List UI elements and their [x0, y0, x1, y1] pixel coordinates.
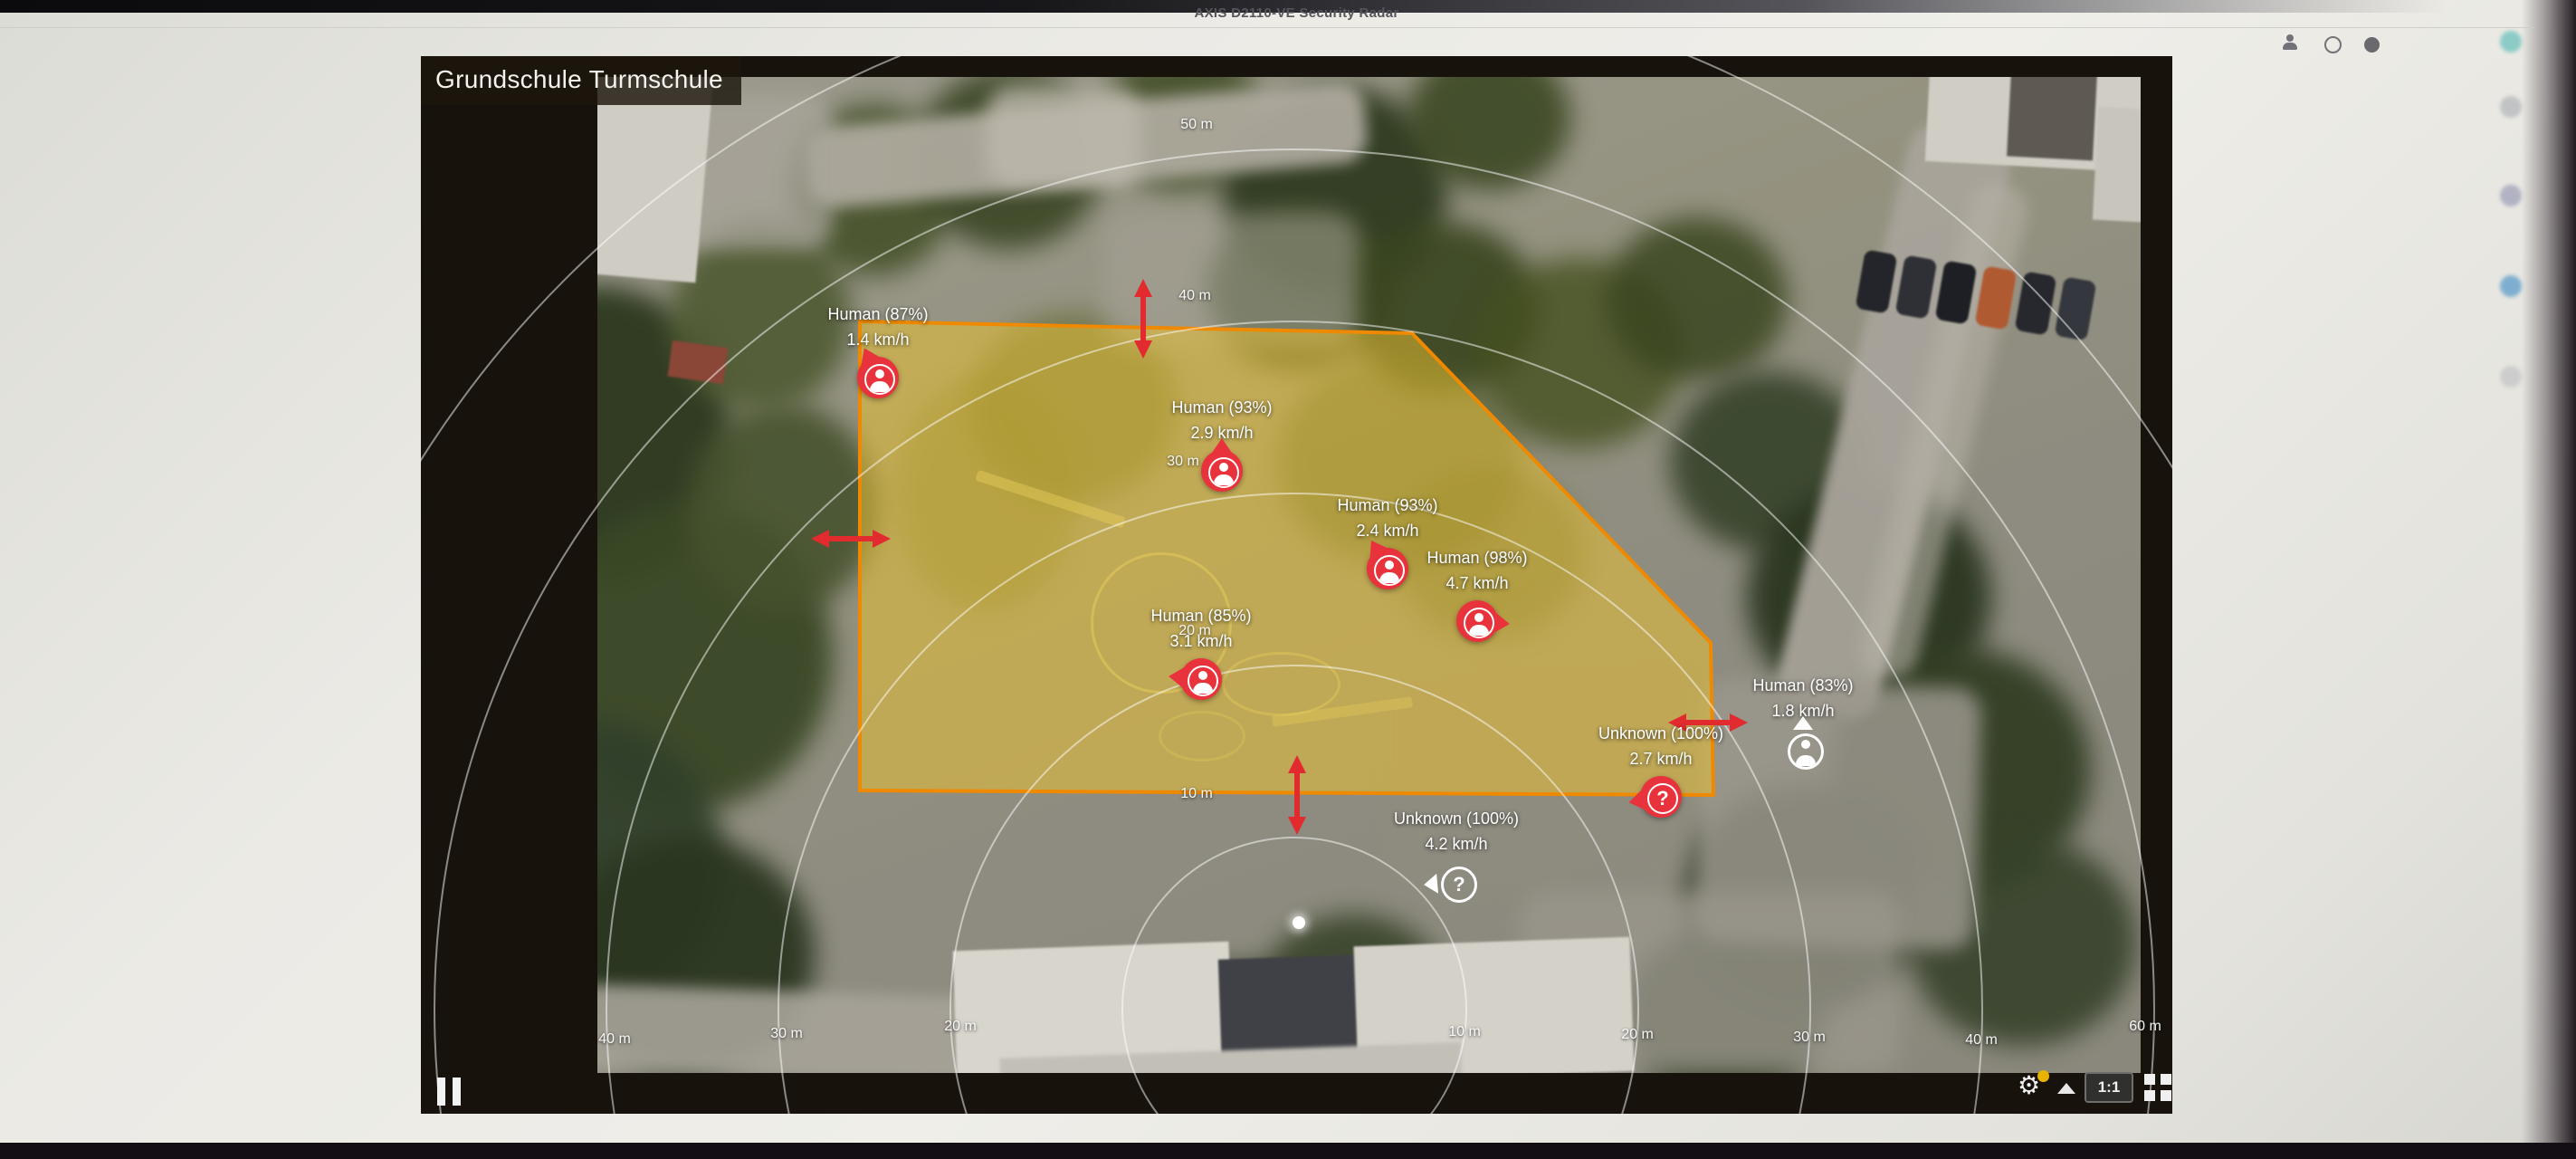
detection-speed-text: 2.7 km/h: [1598, 747, 1723, 772]
detection-human-alarm[interactable]: Human (93%)2.9 km/h: [1201, 450, 1243, 492]
detection-unknown[interactable]: Unknown (100%)4.2 km/h?: [1436, 861, 1477, 903]
person-marker-icon: [1782, 728, 1824, 770]
app-header: AXIS D2110-VE Security Radar: [421, 0, 2172, 27]
person-marker-icon: [1180, 658, 1222, 700]
detection-label: Human (93%)2.4 km/h: [1337, 493, 1437, 544]
detection-class-text: Human (85%): [1150, 604, 1251, 629]
menu-icon[interactable]: [2364, 34, 2382, 53]
user-icon[interactable]: [2281, 34, 2299, 53]
detection-label: Human (85%)3.1 km/h: [1150, 604, 1251, 655]
person-marker-icon: [857, 357, 899, 398]
person-marker-icon: [1201, 450, 1243, 492]
detection-human-alarm[interactable]: Human (93%)2.4 km/h: [1367, 548, 1408, 589]
unknown-marker-icon: ?: [1640, 776, 1682, 818]
unknown-marker-icon: ?: [1436, 861, 1477, 903]
detection-speed-text: 2.4 km/h: [1337, 519, 1437, 544]
detection-class-text: Human (83%): [1752, 674, 1853, 699]
chevron-up-icon[interactable]: [2057, 1083, 2075, 1094]
detection-human[interactable]: Human (83%)1.8 km/h: [1782, 728, 1824, 770]
detection-speed-text: 4.7 km/h: [1426, 571, 1527, 597]
detection-class-text: Human (98%): [1426, 546, 1527, 571]
sidebar-icon[interactable]: [2500, 96, 2522, 118]
detection-class-text: Unknown (100%): [1598, 722, 1723, 747]
radar-live-view: 50 m40 m30 m20 m10 m10 m20 m30 m40 m60 m…: [421, 56, 2172, 1114]
detections-layer: Human (87%)1.4 km/hHuman (93%)2.9 km/hHu…: [421, 56, 2172, 1114]
sidebar-icon[interactable]: [2500, 31, 2522, 53]
scene-name-label: Grundschule Turmschule: [421, 56, 741, 105]
detection-unknown-alarm[interactable]: Unknown (100%)2.7 km/h?: [1640, 776, 1682, 818]
settings-notification-badge: [2037, 1070, 2049, 1082]
zoom-1-1-button[interactable]: 1:1: [2085, 1072, 2133, 1103]
sidebar-icon[interactable]: [2500, 366, 2522, 388]
detection-human-alarm[interactable]: Human (85%)3.1 km/h: [1180, 658, 1222, 700]
detection-speed-text: 4.2 km/h: [1394, 832, 1519, 857]
detection-label: Unknown (100%)2.7 km/h: [1598, 722, 1723, 772]
detection-class-text: Human (87%): [827, 302, 928, 328]
header-divider: [0, 27, 2534, 28]
browser-sidebar-icons: [2500, 0, 2527, 453]
person-marker-icon: [1367, 548, 1408, 589]
detection-human-alarm[interactable]: Human (87%)1.4 km/h: [857, 357, 899, 398]
monitor-bezel-right: [2522, 0, 2576, 1159]
viewer-controls: ⚙ 1:1: [2012, 1068, 2171, 1110]
detection-class-text: Human (93%): [1337, 493, 1437, 519]
detection-label: Unknown (100%)4.2 km/h: [1394, 807, 1519, 857]
page-title: AXIS D2110-VE Security Radar: [1194, 5, 1398, 21]
pause-icon: [437, 1078, 445, 1106]
header-toolbar: [2263, 31, 2426, 58]
sidebar-icon[interactable]: [2500, 275, 2522, 297]
person-marker-icon: [1456, 600, 1498, 642]
detection-label: Human (87%)1.4 km/h: [827, 302, 928, 353]
fullscreen-icon[interactable]: [2144, 1074, 2171, 1101]
sidebar-icon[interactable]: [2500, 185, 2522, 206]
detection-human-alarm[interactable]: Human (98%)4.7 km/h: [1456, 600, 1498, 642]
detection-class-text: Human (93%): [1171, 396, 1272, 421]
detection-speed-text: 3.1 km/h: [1150, 629, 1251, 655]
help-icon[interactable]: [2324, 34, 2342, 53]
detection-label: Human (98%)4.7 km/h: [1426, 546, 1527, 597]
pause-button[interactable]: [434, 1076, 466, 1108]
detection-class-text: Unknown (100%): [1394, 807, 1519, 832]
monitor-bezel-bottom: [0, 1143, 2576, 1159]
detection-speed-text: 1.4 km/h: [827, 328, 928, 353]
